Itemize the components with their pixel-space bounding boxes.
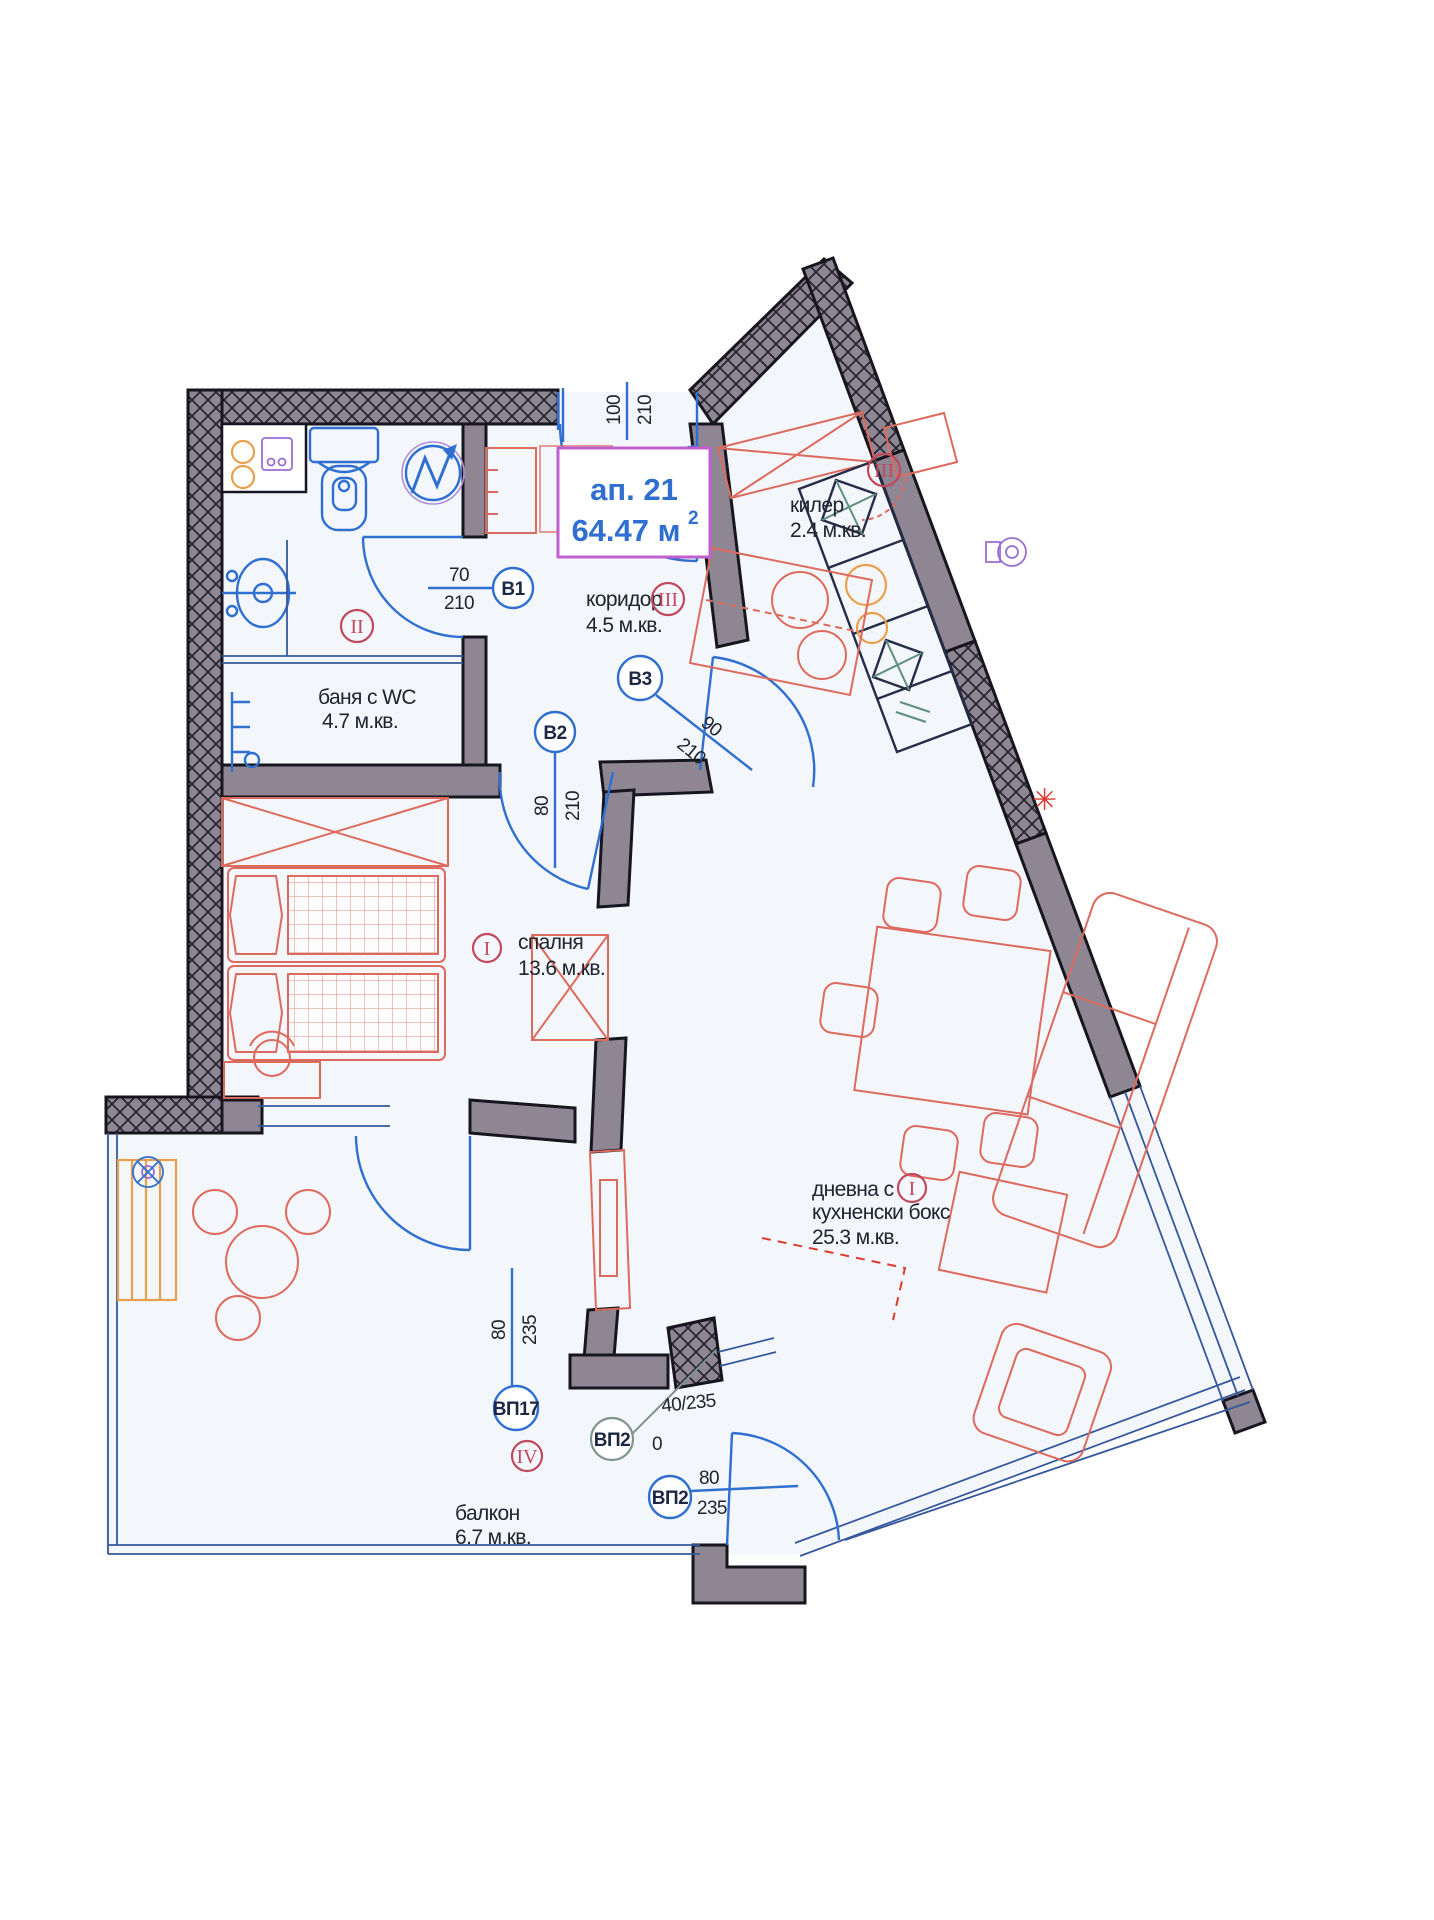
- svg-text:ВП2: ВП2: [652, 1488, 688, 1509]
- wall-bath-bottom: [222, 765, 500, 797]
- wall-bedroom-balcony-left: [222, 1100, 262, 1133]
- apartment-area-exponent: 2: [688, 508, 699, 529]
- wall-separator-1: [598, 790, 634, 907]
- label-bathroom-area: 4.7 м.кв.: [322, 710, 398, 733]
- label-bedroom-name: спалня: [518, 931, 583, 954]
- label-corridor-name: коридор: [586, 588, 662, 611]
- svg-text:III: III: [658, 589, 678, 611]
- svg-text:210: 210: [563, 791, 584, 821]
- svg-text:B3: B3: [628, 669, 651, 690]
- wall-separator-2: [591, 1038, 626, 1152]
- svg-text:70: 70: [449, 565, 469, 586]
- wall-separator-3: [584, 1308, 618, 1359]
- label-storage-name: килер: [790, 494, 844, 517]
- svg-text:80: 80: [532, 796, 553, 816]
- label-balcony-area: 6.7 м.кв.: [455, 1526, 531, 1549]
- label-bedroom-area: 13.6 м.кв.: [518, 957, 605, 980]
- svg-text:235: 235: [697, 1498, 727, 1519]
- label-living-name-1: дневна с: [812, 1178, 894, 1201]
- asterisk-symbol: ✳: [1032, 784, 1057, 817]
- kitchen-outlet-icon: [986, 538, 1026, 566]
- label-balcony-name: балкон: [455, 1502, 520, 1525]
- label-living-area: 25.3 м.кв.: [812, 1226, 899, 1249]
- svg-text:210: 210: [635, 395, 656, 425]
- svg-text:80: 80: [699, 1468, 719, 1489]
- svg-text:210: 210: [444, 593, 474, 614]
- svg-text:0: 0: [652, 1434, 662, 1455]
- label-bathroom-name: баня с WC: [318, 686, 416, 709]
- apartment-number: ап. 21: [590, 472, 678, 507]
- apartment-area: 64.47 м: [571, 513, 680, 548]
- svg-text:I: I: [909, 1178, 916, 1200]
- svg-text:IV: IV: [516, 1446, 538, 1468]
- wall-bathroom-top: [188, 390, 558, 424]
- title-box: ап. 21 64.47 м 2: [558, 448, 710, 557]
- svg-text:II: II: [350, 616, 363, 638]
- svg-text:100: 100: [604, 395, 625, 425]
- wall-bath-right-lower: [463, 637, 486, 768]
- wall-bath-right-upper: [463, 424, 486, 537]
- wall-living-bottom: [570, 1355, 668, 1388]
- svg-text:I: I: [484, 938, 491, 960]
- svg-text:ВП17: ВП17: [493, 1399, 540, 1420]
- wall-left: [188, 390, 222, 1100]
- label-living-name-2: кухненски бокс: [812, 1201, 950, 1224]
- svg-text:80: 80: [489, 1320, 510, 1340]
- svg-text:III: III: [874, 460, 894, 482]
- room-marker-balcony: IV: [512, 1441, 542, 1471]
- svg-text:B1: B1: [501, 579, 525, 600]
- label-corridor-area: 4.5 м.кв.: [586, 614, 662, 637]
- svg-text:B2: B2: [543, 723, 566, 744]
- floor-plan: ✳: [0, 0, 1434, 1920]
- wall-bedroom-balcony-right: [470, 1100, 575, 1142]
- svg-text:235: 235: [520, 1315, 541, 1345]
- label-storage-area: 2.4 м.кв.: [790, 519, 866, 542]
- svg-text:ВП2: ВП2: [594, 1430, 630, 1451]
